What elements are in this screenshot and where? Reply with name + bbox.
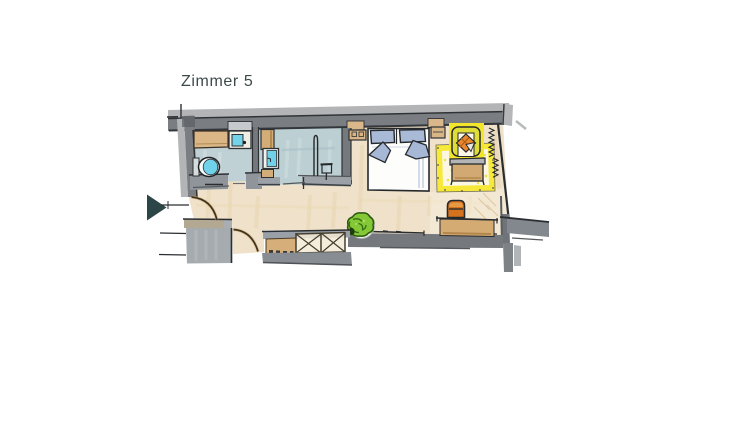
svg-text:Zimmer 5: Zimmer 5 [181,73,253,90]
